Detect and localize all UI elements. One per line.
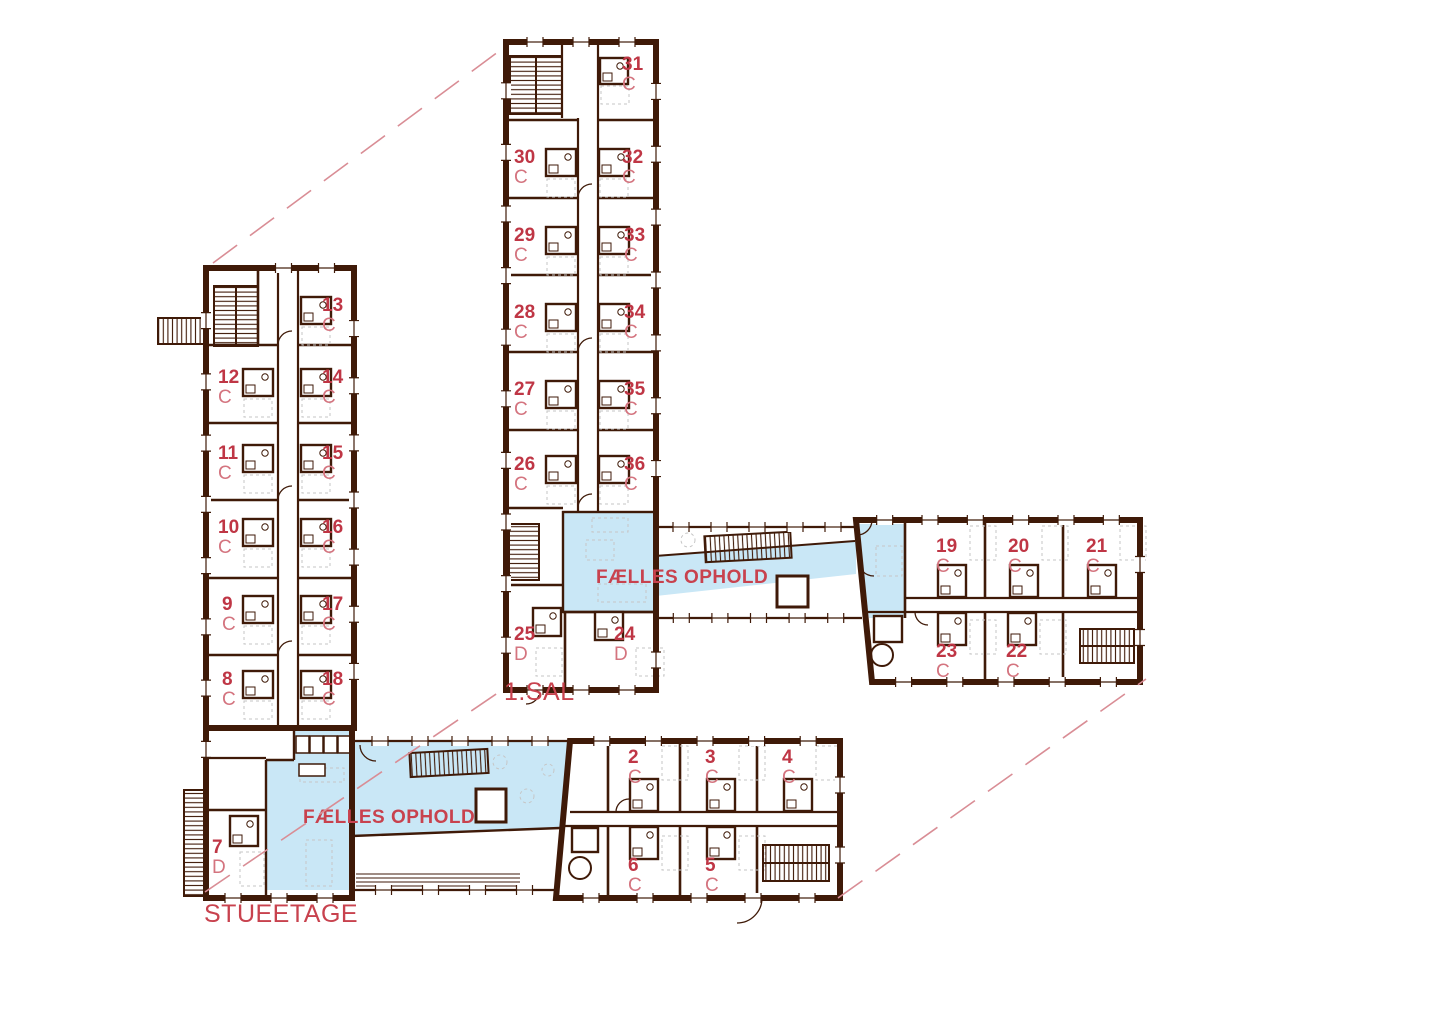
- window-icon: [573, 37, 589, 47]
- window-icon: [825, 522, 841, 532]
- kitchen-counter: [296, 736, 309, 753]
- window-icon: [697, 736, 713, 746]
- bathroom-pod: [546, 304, 576, 331]
- window-icon: [349, 549, 359, 565]
- window-icon: [201, 496, 211, 512]
- room-number: 32: [622, 147, 643, 168]
- window-icon: [412, 736, 428, 746]
- plan-geometry: 31C30C32C29C33C28C34C27C35C26C36C25D24D1…: [158, 37, 1146, 923]
- room-number: 6: [628, 855, 639, 876]
- floor-label-1sal: 1.SAL: [504, 678, 575, 706]
- window-icon: [651, 83, 661, 99]
- room-number: 2: [628, 747, 639, 768]
- round-table: [569, 857, 591, 879]
- room-type-letter: C: [514, 399, 528, 420]
- room-number: 5: [705, 855, 716, 876]
- window-icon: [651, 652, 661, 668]
- floorplan-canvas: 31C30C32C29C33C28C34C27C35C26C36C25D24D1…: [0, 0, 1454, 1030]
- window-icon: [651, 461, 661, 477]
- window-icon: [501, 268, 511, 284]
- room-number: 18: [322, 669, 343, 690]
- window-icon: [745, 893, 761, 903]
- pod-wall: [546, 149, 576, 176]
- window-icon: [711, 522, 727, 532]
- bathroom-pod: [533, 608, 561, 636]
- room-type-letter: C: [622, 74, 636, 95]
- window-icon: [1135, 557, 1145, 573]
- window-icon: [349, 663, 359, 679]
- pod-wall: [243, 519, 273, 546]
- room-type-letter: C: [1006, 661, 1020, 682]
- wc-pod: [874, 616, 902, 642]
- window-icon: [787, 522, 803, 532]
- bathroom-pod: [546, 381, 576, 408]
- window-icon: [1100, 677, 1116, 687]
- room-type-letter: C: [705, 767, 719, 788]
- room-type-letter: C: [222, 689, 236, 710]
- bathroom-pod: [546, 149, 576, 176]
- stairs: [763, 845, 829, 881]
- pod-wall: [243, 445, 273, 472]
- room-number: 31: [622, 54, 644, 75]
- floor-projection-line: [213, 46, 506, 263]
- room-type-letter: C: [218, 537, 232, 558]
- room-number: 21: [1086, 536, 1108, 557]
- room-type-letter: C: [628, 767, 642, 788]
- room-type-letter: C: [322, 463, 336, 484]
- window-icon: [201, 374, 211, 390]
- room-type-letter: C: [936, 661, 950, 682]
- room-number: 36: [624, 454, 645, 475]
- window-icon: [1013, 515, 1029, 525]
- room-type-letter: C: [705, 875, 719, 896]
- room-type-letter: C: [624, 474, 638, 495]
- room-number: 34: [624, 302, 646, 323]
- room-type-letter: C: [782, 767, 796, 788]
- window-icon: [967, 515, 983, 525]
- window-icon: [349, 606, 359, 622]
- window-icon: [319, 263, 335, 273]
- pod-wall: [230, 816, 258, 846]
- stairs: [704, 532, 791, 562]
- room-number: 28: [514, 302, 535, 323]
- common-area-1sal-lounge: [563, 512, 656, 612]
- window-icon: [922, 515, 938, 525]
- room-number: 12: [218, 367, 239, 388]
- window-icon: [501, 452, 511, 468]
- room-number: 15: [322, 443, 344, 464]
- bathroom-pod: [243, 369, 273, 396]
- kitchen-counter: [299, 764, 325, 776]
- window-icon: [651, 272, 661, 288]
- pod-wall: [546, 227, 576, 254]
- room-type-letter: D: [614, 644, 628, 665]
- window-icon: [645, 736, 661, 746]
- room-type-letter: C: [322, 537, 336, 558]
- window-icon: [800, 736, 816, 746]
- window-icon: [828, 613, 844, 623]
- round-table: [871, 644, 893, 666]
- room-type-letter: C: [514, 322, 528, 343]
- room-type-letter: C: [218, 387, 232, 408]
- window-icon: [583, 893, 599, 903]
- room-type-letter: C: [514, 167, 528, 188]
- kitchen-counter: [324, 736, 337, 753]
- room-type-letter: C: [322, 614, 336, 635]
- window-icon: [651, 209, 661, 225]
- window-icon: [452, 736, 468, 746]
- stair-treads: [509, 524, 539, 580]
- room-number: 4: [782, 747, 793, 768]
- window-icon: [749, 522, 765, 532]
- room-number: 3: [705, 747, 716, 768]
- room-number: 20: [1008, 536, 1029, 557]
- room-number: 7: [212, 837, 223, 858]
- window-icon: [619, 37, 635, 47]
- room-number: 25: [514, 624, 536, 645]
- room-type-letter: C: [624, 245, 638, 266]
- stairs: [509, 524, 539, 580]
- room-number: 24: [614, 624, 636, 645]
- stair-treads: [704, 532, 791, 562]
- bathroom-pod: [243, 596, 273, 623]
- room-number: 26: [514, 454, 535, 475]
- room-type-letter: C: [1086, 556, 1100, 577]
- window-icon: [501, 391, 511, 407]
- room-type-letter: C: [624, 322, 638, 343]
- window-icon: [201, 619, 211, 635]
- window-icon: [651, 398, 661, 414]
- room-number: 17: [322, 594, 343, 615]
- kitchen-counter: [310, 736, 323, 753]
- window-icon: [501, 206, 511, 222]
- room-type-letter: C: [514, 474, 528, 495]
- window-icon: [501, 144, 511, 160]
- pod-wall: [243, 596, 273, 623]
- window-icon: [372, 736, 388, 746]
- bathroom-pod: [546, 227, 576, 254]
- stair-treads: [184, 790, 206, 896]
- room-type-letter: C: [218, 463, 232, 484]
- window-icon: [349, 378, 359, 394]
- window-icon: [423, 885, 439, 895]
- floorplan-drawing: 31C30C32C29C33C28C34C27C35C26C36C25D24D1…: [0, 0, 1454, 1030]
- room-type-letter: C: [514, 245, 528, 266]
- room-number: 27: [514, 379, 535, 400]
- room-number: 9: [222, 594, 233, 615]
- window-icon: [501, 514, 511, 530]
- window-icon: [501, 329, 511, 345]
- window-icon: [835, 777, 845, 793]
- room-type-letter: C: [624, 399, 638, 420]
- window-icon: [751, 613, 767, 623]
- window-icon: [749, 736, 765, 746]
- bathroom-pod: [243, 445, 273, 472]
- wc-pod: [572, 828, 598, 852]
- common-area-label-1sal: FÆLLES OPHOLD: [596, 567, 768, 588]
- window-icon: [1058, 515, 1074, 525]
- window-icon: [492, 736, 508, 746]
- room-type-letter: C: [622, 167, 636, 188]
- room-number: 33: [624, 225, 645, 246]
- room-type-letter: C: [936, 556, 950, 577]
- window-icon: [619, 685, 635, 695]
- room-number: 29: [514, 225, 535, 246]
- room-number: 16: [322, 517, 343, 538]
- window-icon: [673, 613, 689, 623]
- window-icon: [201, 313, 211, 329]
- room-number: 11: [218, 443, 239, 464]
- window-icon: [501, 637, 511, 653]
- window-icon: [673, 522, 689, 532]
- pod-wall: [243, 369, 273, 396]
- room-number: 8: [222, 669, 233, 690]
- window-icon: [201, 741, 211, 757]
- stairs: [1080, 629, 1134, 663]
- room-type-letter: C: [322, 315, 336, 336]
- common-area-label-stueetage: FÆLLES OPHOLD: [303, 807, 475, 828]
- window-icon: [789, 613, 805, 623]
- room-type-letter: C: [222, 614, 236, 635]
- window-icon: [835, 847, 845, 863]
- room-number: 30: [514, 147, 535, 168]
- elevator: [777, 576, 808, 607]
- room-number: 10: [218, 517, 239, 538]
- room-type-letter: C: [1008, 556, 1022, 577]
- stairs: [158, 318, 204, 344]
- floor-label-stueetage: STUEETAGE: [204, 900, 358, 928]
- window-icon: [712, 613, 728, 623]
- room-number: 22: [1006, 641, 1027, 662]
- window-icon: [1103, 515, 1119, 525]
- window-icon: [201, 435, 211, 451]
- window-icon: [501, 83, 511, 99]
- room-type-letter: C: [628, 875, 642, 896]
- pod-wall: [546, 381, 576, 408]
- window-icon: [573, 685, 589, 695]
- window-icon: [651, 335, 661, 351]
- window-icon: [501, 576, 511, 592]
- pod-wall: [546, 456, 576, 483]
- window-icon: [201, 558, 211, 574]
- room-number: 35: [624, 379, 646, 400]
- room-type-letter: C: [322, 387, 336, 408]
- pod-wall: [243, 671, 273, 698]
- room-number: 13: [322, 295, 343, 316]
- stairs: [510, 56, 562, 114]
- room-type-letter: D: [514, 644, 528, 665]
- bathroom-pod: [243, 671, 273, 698]
- floor-projection-line: [838, 679, 1146, 898]
- window-icon: [470, 885, 486, 895]
- stair-treads: [409, 749, 488, 777]
- window-icon: [527, 37, 543, 47]
- room-number: 14: [322, 367, 344, 388]
- stairs: [409, 749, 488, 777]
- window-icon: [877, 515, 893, 525]
- room-type-letter: D: [212, 857, 226, 878]
- bathroom-pod: [243, 519, 273, 546]
- window-icon: [376, 885, 392, 895]
- window-icon: [201, 680, 211, 696]
- stairs: [214, 286, 258, 346]
- window-icon: [896, 677, 912, 687]
- window-icon: [651, 146, 661, 162]
- window-icon: [276, 263, 292, 273]
- window-icon: [349, 321, 359, 337]
- window-icon: [1135, 630, 1145, 646]
- window-icon: [1049, 677, 1065, 687]
- bathroom-pod: [230, 816, 258, 846]
- pod-wall: [546, 304, 576, 331]
- pod-wall: [533, 608, 561, 636]
- stair-treads: [158, 318, 204, 344]
- room-type-letter: C: [322, 689, 336, 710]
- room-number: 19: [936, 536, 957, 557]
- window-icon: [517, 885, 533, 895]
- window-icon: [349, 435, 359, 451]
- elevator: [476, 789, 506, 822]
- room-number: 23: [936, 641, 957, 662]
- stairs: [184, 790, 206, 896]
- bathroom-pod: [546, 456, 576, 483]
- window-icon: [349, 492, 359, 508]
- window-icon: [594, 736, 610, 746]
- window-icon: [799, 893, 815, 903]
- window-icon: [532, 736, 548, 746]
